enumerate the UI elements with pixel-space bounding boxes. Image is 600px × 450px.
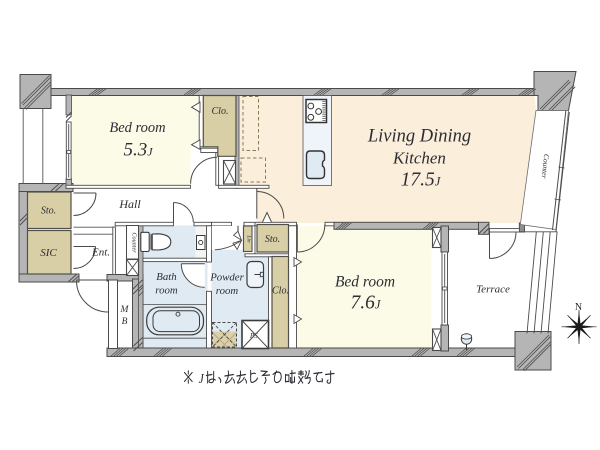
svg-text:Bed room: Bed room (335, 274, 395, 291)
svg-text:N: N (575, 302, 582, 313)
svg-text:Kitchen: Kitchen (392, 149, 446, 168)
svg-text:Terrace: Terrace (476, 284, 510, 296)
svg-text:Clo.: Clo. (212, 106, 229, 117)
svg-text:Bath: Bath (156, 271, 176, 283)
svg-text:B: B (122, 317, 128, 327)
svg-text:Sto.: Sto. (41, 206, 56, 217)
svg-text:Ent.: Ent. (91, 247, 110, 259)
svg-text:SIC: SIC (40, 247, 57, 259)
svg-text:Bed room: Bed room (109, 120, 165, 136)
svg-text:Clo.: Clo. (272, 286, 289, 297)
svg-text:room: room (155, 285, 178, 297)
svg-text:Powder: Powder (209, 272, 244, 284)
svg-text:Counter: Counter (131, 232, 138, 253)
svg-text:PS: PS (249, 332, 258, 340)
svg-text:room: room (216, 285, 239, 297)
svg-text:M: M (120, 305, 130, 315)
svg-text:Hall: Hall (118, 197, 141, 211)
svg-text:Lin: Lin (246, 234, 252, 243)
svg-text:Sto.: Sto. (265, 234, 280, 245)
svg-text:Living Dining: Living Dining (367, 127, 471, 147)
